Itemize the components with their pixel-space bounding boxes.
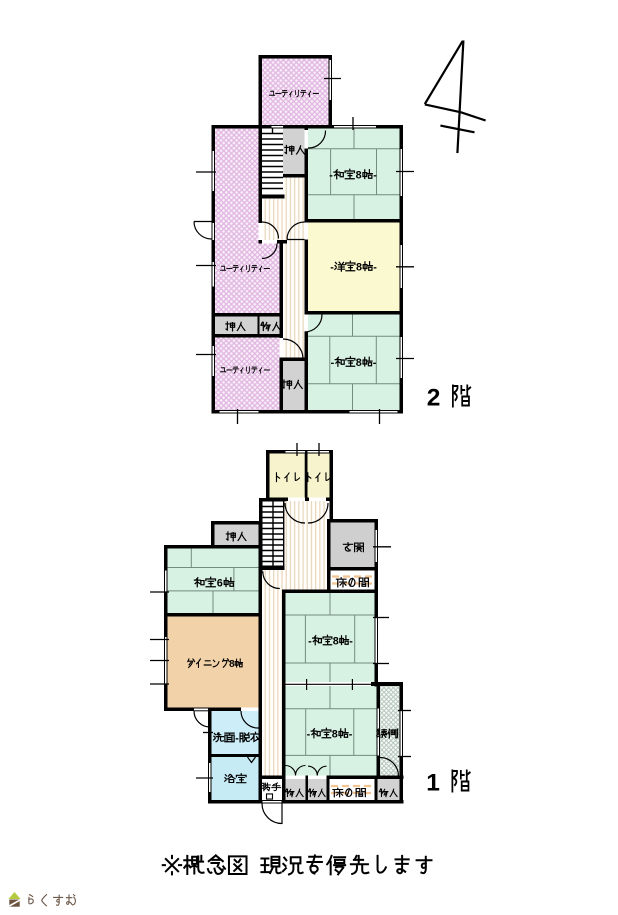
svg-text:1: 1 [426, 770, 440, 797]
svg-text:-: - [349, 729, 353, 741]
svg-text:-: - [373, 262, 377, 274]
svg-text:8: 8 [229, 659, 235, 670]
svg-text:-: - [331, 357, 335, 369]
svg-text:8: 8 [356, 170, 362, 182]
svg-text:-: - [373, 357, 377, 369]
svg-text:8: 8 [356, 262, 362, 274]
svg-text:-: - [307, 729, 311, 741]
svg-text:8: 8 [332, 729, 338, 741]
svg-text:8: 8 [333, 636, 339, 648]
svg-text:-: - [235, 733, 239, 745]
svg-text:-: - [349, 636, 353, 648]
svg-text:-: - [304, 381, 308, 392]
svg-text:-: - [329, 170, 333, 182]
svg-text:8: 8 [356, 357, 362, 369]
svg-text:-: - [308, 636, 312, 648]
svg-text:-: - [330, 262, 334, 274]
svg-text:6: 6 [217, 578, 223, 590]
svg-text:-: - [373, 170, 377, 182]
svg-text:2: 2 [427, 385, 441, 412]
